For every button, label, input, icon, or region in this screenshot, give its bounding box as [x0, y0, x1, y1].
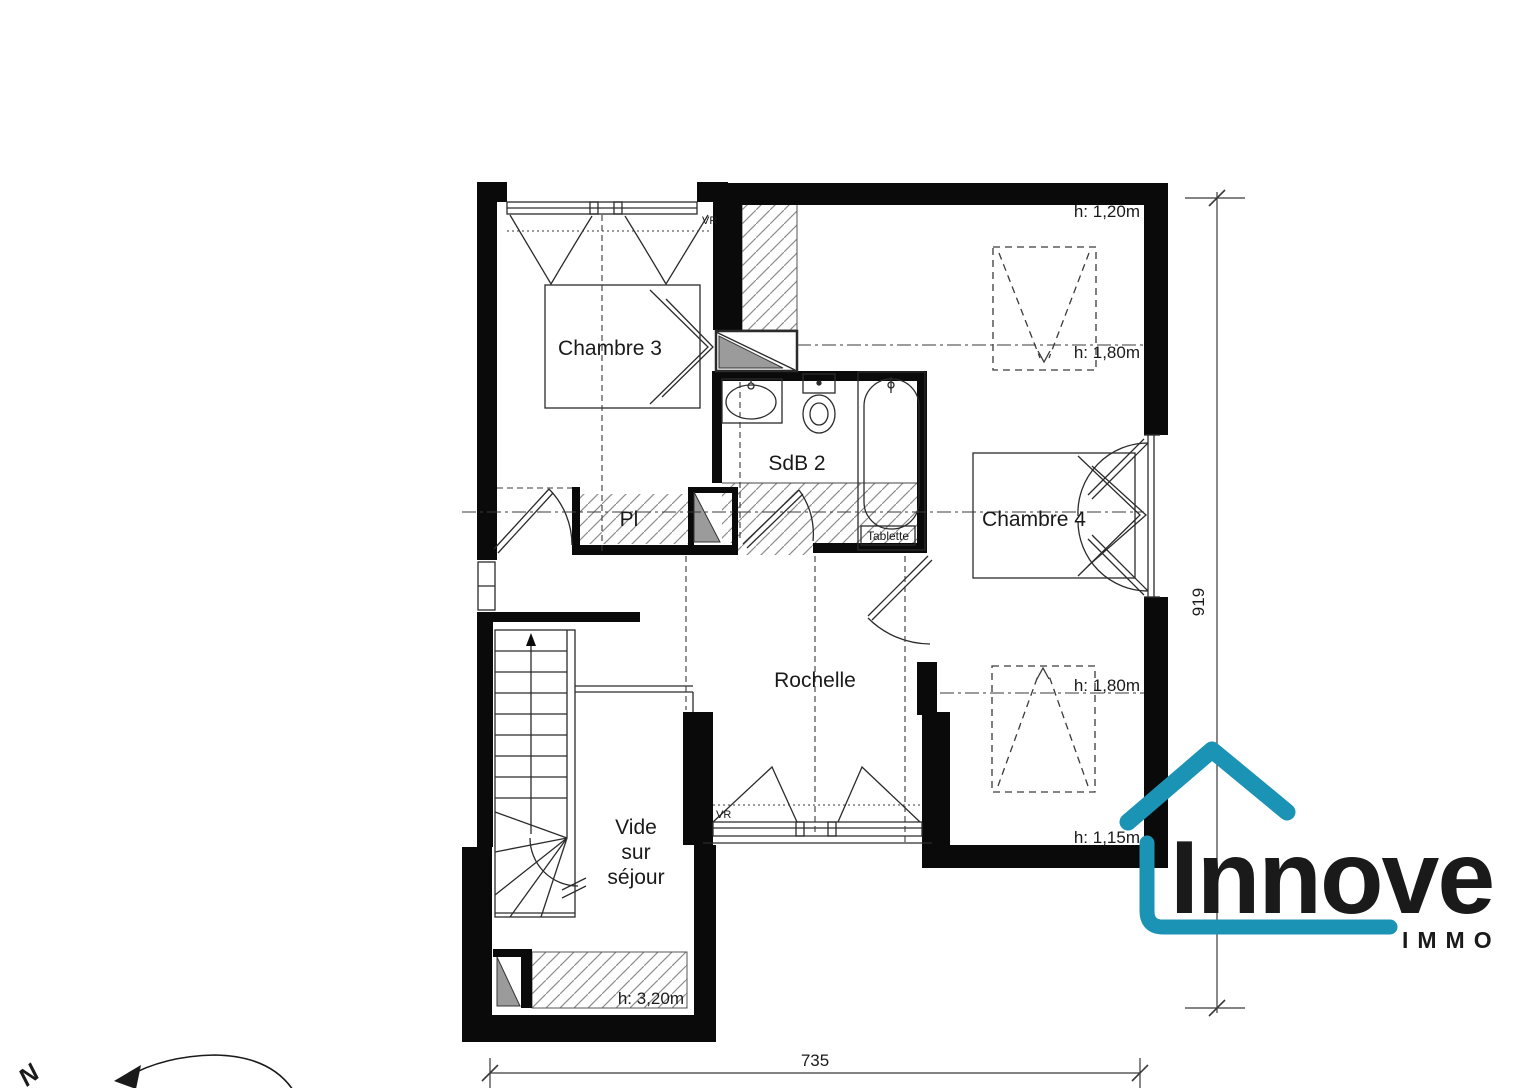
compass-north-label: N — [13, 1058, 45, 1088]
door-chambre3 — [494, 489, 572, 553]
room-label-vide-line2: sur — [621, 841, 650, 864]
toilet-icon — [803, 374, 835, 433]
shutter-label-bottom: VR — [716, 809, 731, 821]
duct-triangle-icon — [719, 336, 783, 368]
window-left-wall — [478, 562, 495, 610]
floor-plan-page: N Chambre 3 SdB 2 Pl Chambre 4 Rochelle … — [0, 0, 1540, 1088]
height-label-vide: h: 3,20m — [618, 989, 684, 1008]
door-chambre4 — [868, 556, 932, 644]
window-chambre4 — [1078, 435, 1160, 597]
logo-innove-immo: Innove IMMO — [1128, 750, 1501, 953]
logo-tagline: IMMO — [1402, 927, 1501, 953]
room-label-rochelle: Rochelle — [774, 669, 856, 692]
room-label-sdb-2: SdB 2 — [768, 452, 825, 475]
sink-icon — [722, 379, 782, 423]
dimension-height-label: 919 — [1189, 588, 1208, 616]
shutter-label-top: VR — [702, 215, 717, 227]
floor-plan-drawing: N Chambre 3 SdB 2 Pl Chambre 4 Rochelle … — [0, 0, 1540, 1088]
stairs-icon — [495, 630, 586, 917]
window-chambre3 — [507, 202, 708, 284]
duct-triangle-icon — [694, 492, 720, 542]
compass-north-icon: N — [13, 1055, 293, 1088]
room-label-pl: Pl — [620, 508, 639, 531]
logo-name: Innove — [1170, 820, 1493, 936]
tablette-label: Tablette — [867, 529, 909, 543]
height-label-bottom: h: 1,15m — [1074, 828, 1140, 847]
linework — [478, 202, 1160, 917]
guardrail — [575, 686, 693, 712]
dimension-width-label: 735 — [801, 1051, 829, 1070]
room-label-vide-line1: Vide — [615, 816, 657, 839]
height-label-top: h: 1,20m — [1074, 202, 1140, 221]
room-label-vide-line3: séjour — [607, 866, 664, 889]
window-rochelle — [703, 767, 932, 843]
room-label-chambre-3: Chambre 3 — [558, 337, 662, 360]
duct-triangle-icon — [497, 957, 520, 1006]
height-label-velux-bottom: h: 1,80m — [1074, 676, 1140, 695]
bath-door-hatch — [737, 543, 813, 555]
chimney-hatch — [742, 200, 797, 330]
room-label-chambre-4: Chambre 4 — [982, 508, 1086, 531]
height-label-velux-top: h: 1,80m — [1074, 343, 1140, 362]
